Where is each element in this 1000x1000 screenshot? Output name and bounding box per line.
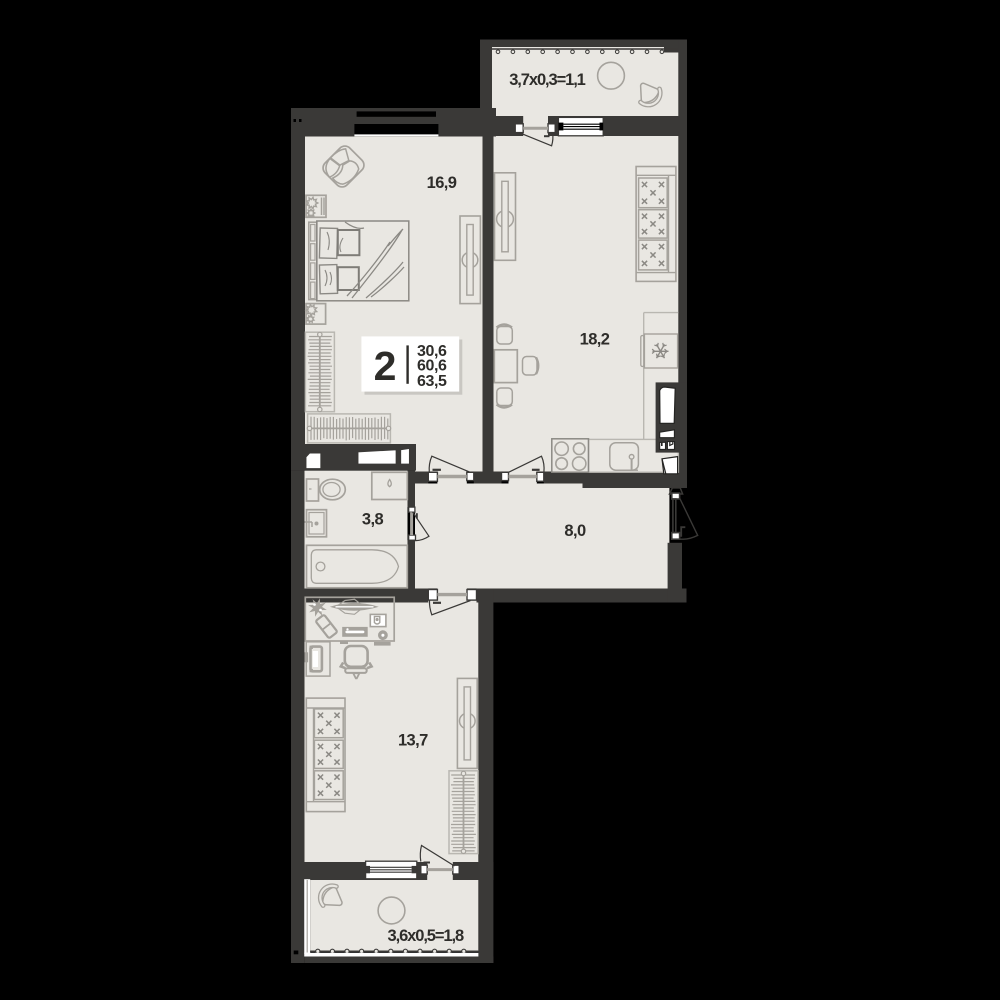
svg-text:16,9: 16,9 (427, 174, 457, 192)
svg-text:13,7: 13,7 (398, 732, 428, 750)
svg-text:3,8: 3,8 (362, 511, 384, 529)
svg-text:63,5: 63,5 (417, 373, 447, 390)
svg-text:2: 2 (374, 343, 397, 389)
svg-text:18,2: 18,2 (580, 331, 610, 349)
svg-text:3,6x0,5=1,8: 3,6x0,5=1,8 (388, 927, 464, 945)
svg-text:8,0: 8,0 (564, 522, 586, 540)
svg-text:3,7x0,3=1,1: 3,7x0,3=1,1 (509, 71, 585, 89)
